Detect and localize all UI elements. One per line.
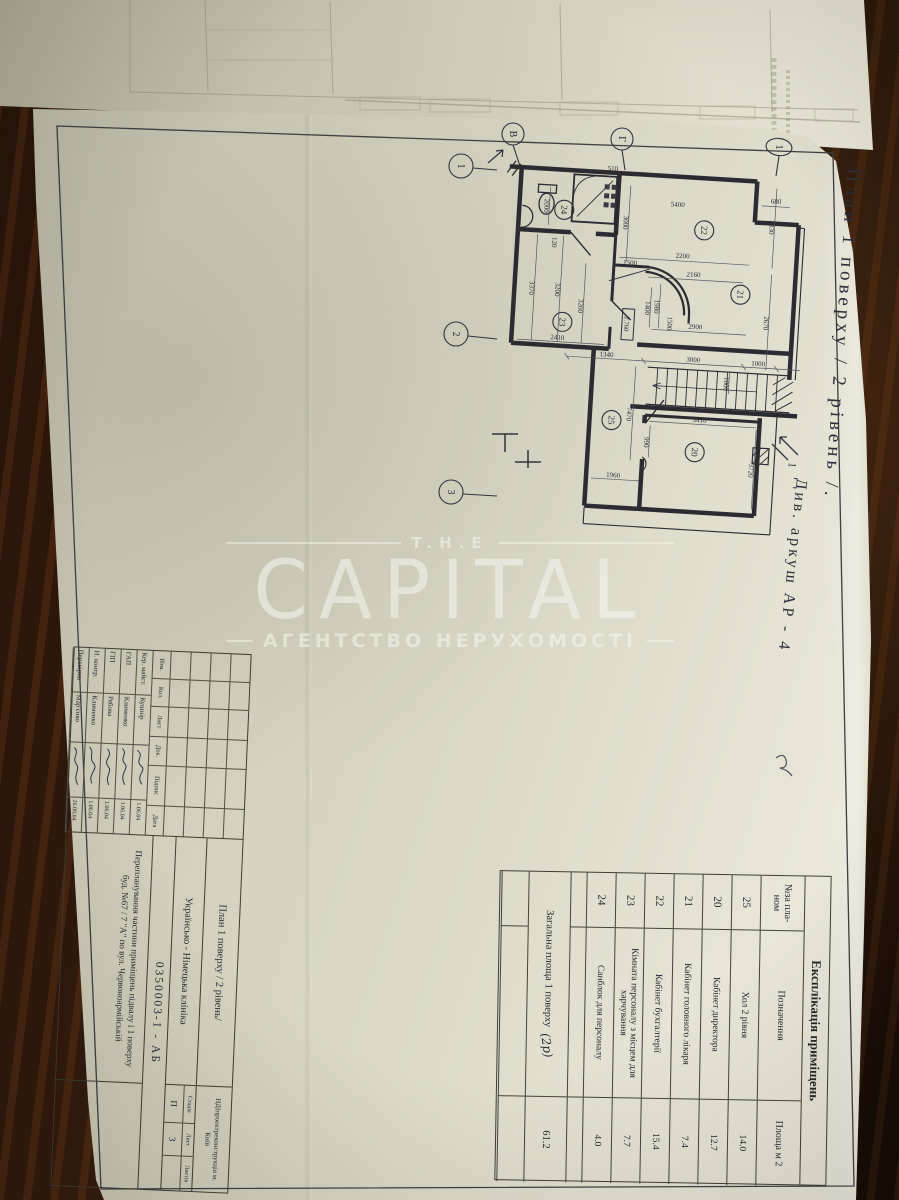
explication-table: Експлікація приміщень №за пла-ном Познач…: [494, 870, 831, 1186]
stamp-right-block: План 1 поверху / 2 рівень/ НДІпроектреко…: [49, 832, 242, 1192]
table-row: 20 Кабінет директора 12.7: [697, 875, 731, 1183]
stamp-project-description: Перепланування частини приміщень підвалу…: [54, 832, 153, 1084]
total-label: Загальна площа 1 поверху: [542, 910, 555, 1027]
signature: [114, 744, 132, 800]
signature: [66, 742, 84, 798]
watermark-line: [647, 640, 674, 643]
table-row: 25 Хол 2 рівня 14.0: [726, 875, 760, 1183]
watermark: T.H.E CAPITAL АГЕНТСТВО НЕРУХОМОСТІ: [226, 534, 674, 652]
stamp-organization: НДІпроектреконструкція м. Київ: [191, 1086, 232, 1192]
table-row: 21 Кабінет головного лікаря 7.4: [668, 874, 702, 1182]
explication-title: Експлікація приміщень: [799, 876, 830, 1184]
col-name-header: Позначення: [757, 931, 804, 1102]
total-row: Загальна площа 1 поверху (2р) 61.2: [523, 872, 570, 1181]
watermark-brand: CAPITAL: [226, 550, 674, 631]
signature: [82, 743, 100, 799]
explication-header: №за пла-ном Позначення Площа м 2: [755, 876, 804, 1185]
total-area-value: 61.2: [523, 1097, 566, 1183]
table-row: 23 Кімната персоналу з місцем для харчув…: [610, 873, 644, 1181]
page-curl-highlight: [821, 140, 881, 1200]
watermark-line: [226, 640, 253, 643]
stamp-log-block: Изм. Кол. Лист Док. Підпис Дата Кер. май…: [65, 647, 251, 840]
photo-of-floor-plan: { "watermark": {"top": "T.H.E", "brand":…: [0, 0, 899, 1200]
empty-row: [496, 871, 528, 1179]
signature: [130, 745, 148, 801]
title-block: Изм. Кол. Лист Док. Підпис Дата Кер. май…: [50, 646, 251, 1193]
signature: [98, 744, 116, 800]
col-area-header: Площа м 2: [755, 1101, 800, 1187]
table-row: 22 Кабінет бухгалтерії 15.4: [639, 874, 673, 1182]
stage-sheet-table: Стадія Лист Листів П 3: [161, 1085, 196, 1191]
total-handwritten-note: (2р): [539, 1032, 556, 1058]
table-row: 24 Санблок для персоналу 4.0: [581, 873, 615, 1181]
col-num-header: №за пла-ном: [760, 876, 805, 932]
